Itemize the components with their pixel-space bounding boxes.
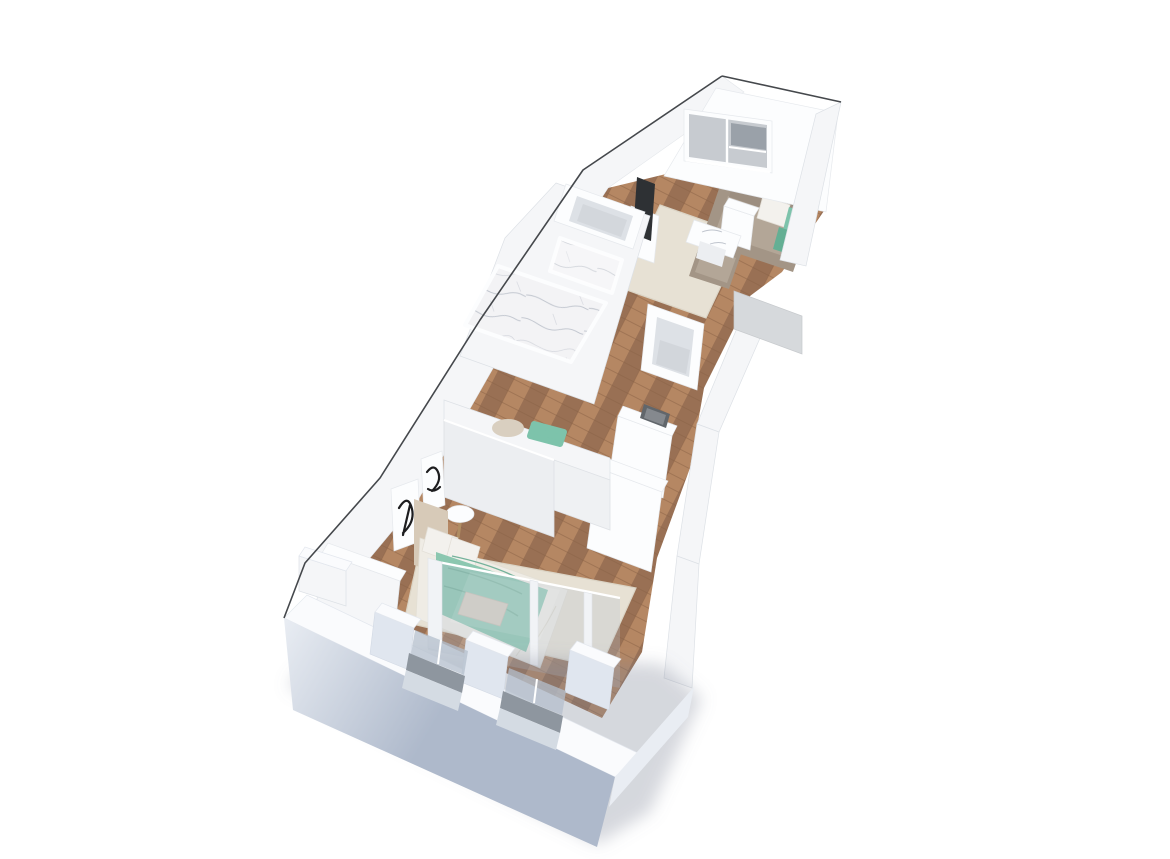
glass-post-2 bbox=[530, 580, 538, 666]
right-wall-bedroom bbox=[664, 556, 699, 688]
floorplan-svg: 3D dollhouse-style floor plan render of … bbox=[0, 0, 1170, 859]
round-side-table bbox=[446, 506, 474, 523]
beige-chair bbox=[492, 419, 524, 437]
floorplan-render: 3D dollhouse-style floor plan render of … bbox=[0, 0, 1170, 859]
